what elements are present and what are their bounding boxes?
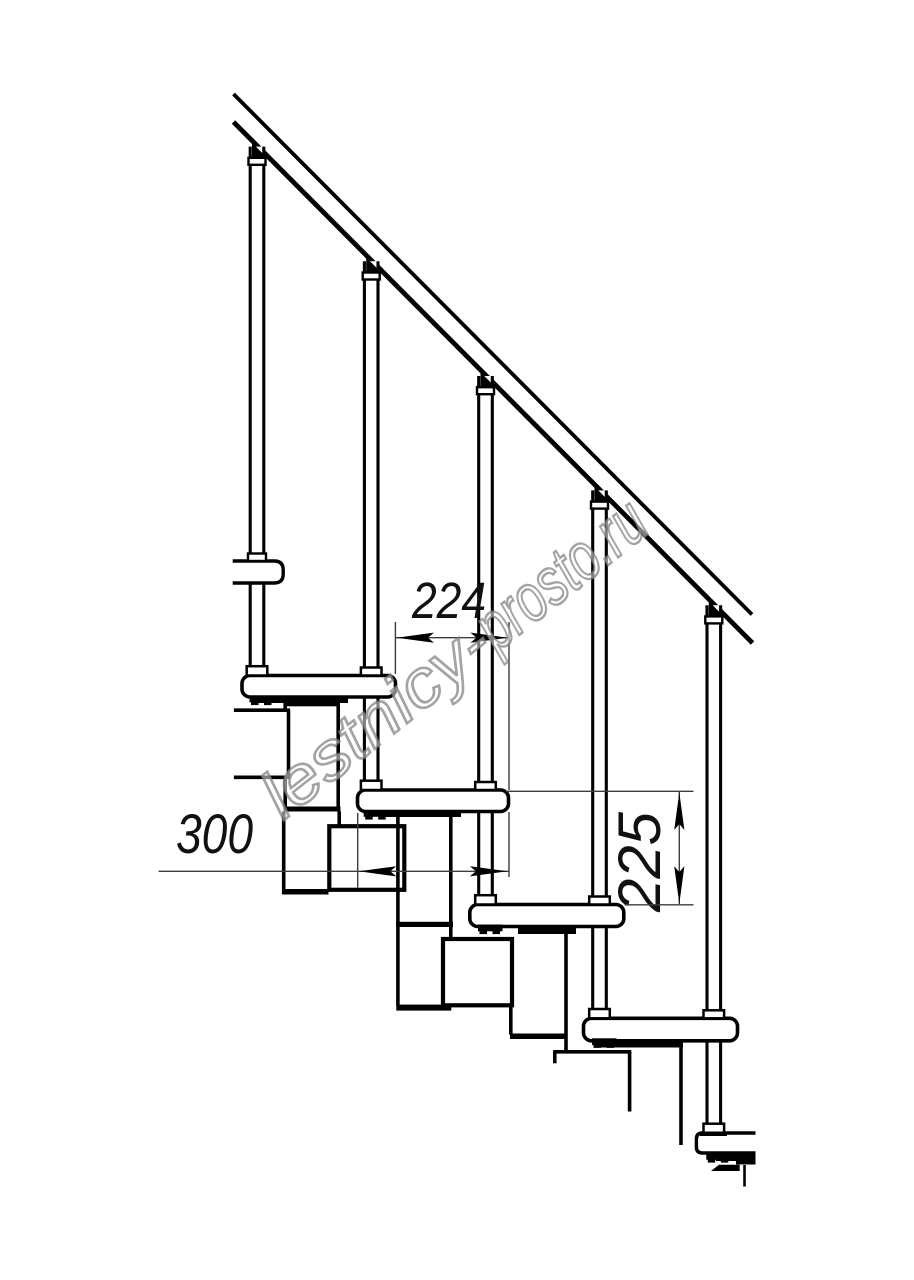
svg-text:225: 225: [606, 811, 673, 913]
svg-text:300: 300: [176, 802, 253, 865]
